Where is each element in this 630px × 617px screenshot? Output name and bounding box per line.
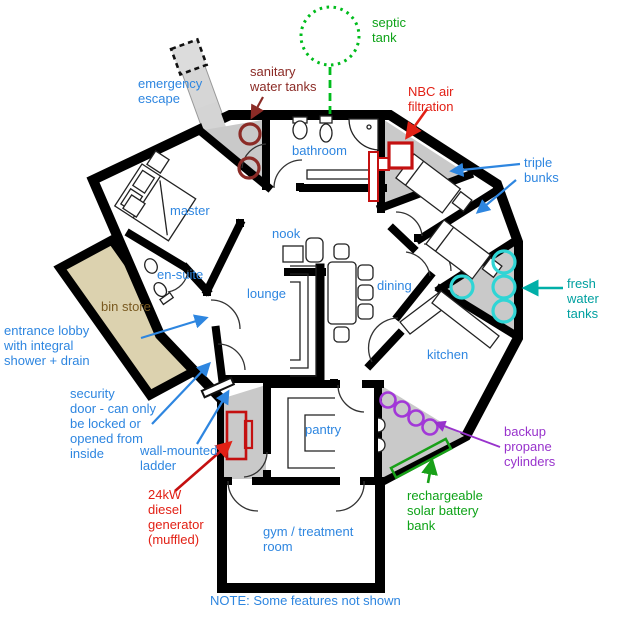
label-pantry: pantry — [305, 422, 341, 437]
label-sanitary-water-tanks: sanitary water tanks — [250, 64, 316, 94]
nook-desk-icon — [283, 246, 303, 262]
label-bin-store: bin store — [101, 299, 151, 314]
dining-chair — [334, 244, 349, 259]
floor-plan-page: septic tank emergency escape sanitary wa… — [0, 0, 630, 617]
label-kitchen: kitchen — [427, 347, 468, 362]
label-nook: nook — [272, 226, 300, 241]
label-emergency-escape: emergency escape — [138, 76, 202, 106]
dining-chair — [334, 327, 349, 342]
label-wall-mounted-ladder: wall-mounted ladder — [140, 443, 217, 473]
bath-bench — [307, 170, 377, 179]
label-dining: dining — [377, 278, 412, 293]
label-entrance-lobby: entrance lobby with integral shower + dr… — [4, 323, 90, 368]
nook-chair — [306, 238, 323, 262]
label-nbc-air-filtration: NBC air filtration — [408, 84, 454, 114]
dining-chair — [358, 265, 373, 280]
bathroom-sink-icon — [293, 117, 307, 139]
label-backup-propane: backup propane cylinders — [504, 424, 555, 469]
label-gym-treatment-room: gym / treatment room — [263, 524, 353, 554]
toilet-icon — [320, 116, 332, 142]
dining-chair — [358, 304, 373, 319]
label-solar-battery: rechargeable solar battery bank — [407, 488, 483, 533]
label-bathroom: bathroom — [292, 143, 347, 158]
dining-chair — [358, 285, 373, 300]
label-fresh-water-tanks: fresh water tanks — [567, 276, 630, 321]
label-master: master — [170, 203, 210, 218]
solar-arrow — [428, 461, 432, 483]
label-septic-tank: septic tank — [372, 15, 406, 45]
septic-tank-icon — [301, 7, 359, 65]
label-note: NOTE: Some features not shown — [210, 593, 401, 608]
label-diesel-generator: 24kW diesel generator (muffled) — [148, 487, 204, 547]
dining-table-icon — [328, 262, 356, 324]
label-en-suite: en-suite — [157, 267, 203, 282]
label-triple-bunks: triple bunks — [524, 155, 559, 185]
label-lounge: lounge — [247, 286, 286, 301]
